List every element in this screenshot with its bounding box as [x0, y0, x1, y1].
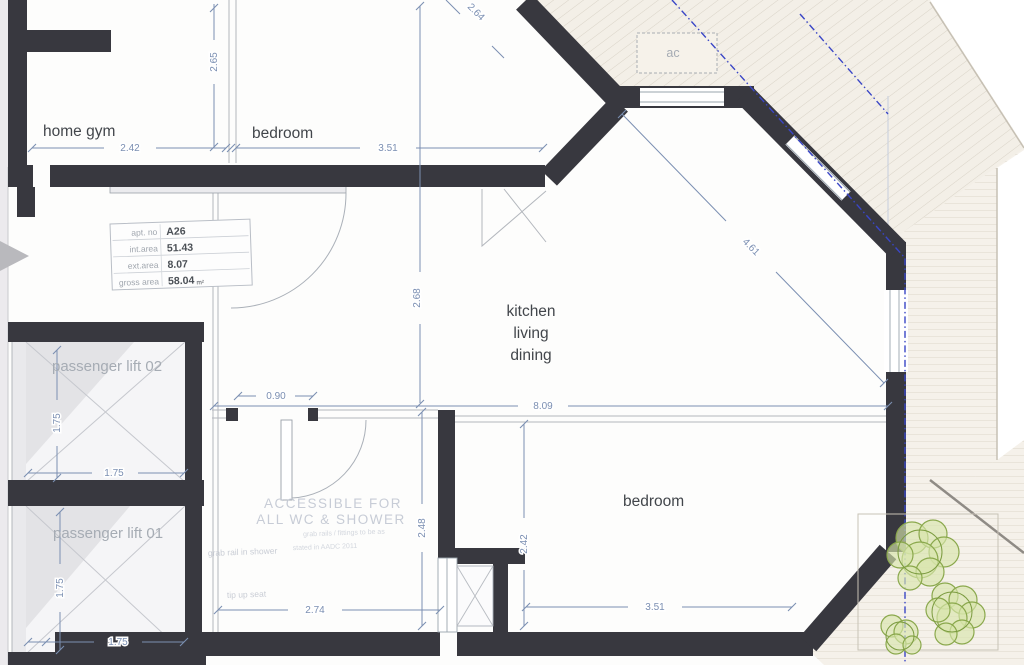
- dim-lift01-height: 1.75: [55, 578, 66, 598]
- dim-gym-width: 2.42: [120, 143, 140, 154]
- table-value-ext-area: 8.07: [167, 258, 188, 271]
- dim-partition-height: 2.65: [209, 52, 220, 72]
- room-label-bedroom-bottom: bedroom: [623, 493, 684, 510]
- room-label-lift-02: passenger lift 02: [52, 358, 162, 375]
- dim-bathroom-width: 2.74: [305, 605, 325, 616]
- room-label-living: living: [513, 325, 548, 342]
- dim-kitchen-width: 8.09: [533, 401, 553, 412]
- dim-bedroom-bottom-height: 2.42: [519, 534, 530, 554]
- dim-lift02-width: 1.75: [104, 468, 124, 479]
- table-label-apt-no: apt. no: [131, 227, 158, 238]
- accessible-note-line1: ACCESSIBLE FOR: [264, 496, 402, 511]
- dim-lift02-height: 1.75: [52, 413, 63, 433]
- table-label-int-area: int.area: [129, 243, 158, 254]
- room-label-dining: dining: [510, 347, 551, 364]
- room-label-ac: ac: [666, 46, 679, 60]
- door-leaf: [281, 420, 292, 500]
- floor-plan-drawing: 2.42 3.51 2.65 2.68 8.09 4.61 0.90 1.75 …: [0, 0, 1024, 665]
- dim-door-width: 0.90: [266, 391, 286, 402]
- table-value-int-area: 51.43: [167, 242, 194, 255]
- room-label-lift-01: passenger lift 01: [53, 525, 163, 542]
- table-value-apt-no: A26: [166, 225, 186, 238]
- window: [640, 88, 724, 106]
- info-table: apt. no A26 int.area 51.43 ext.area 8.07…: [110, 219, 252, 290]
- floor-plan: 2.42 3.51 2.65 2.68 8.09 4.61 0.90 1.75 …: [0, 0, 1024, 665]
- dim-kitchen-height: 2.68: [412, 288, 423, 308]
- dim-bedroom-bottom-width: 3.51: [645, 602, 665, 613]
- accessible-note-line2: ALL WC & SHOWER: [256, 512, 406, 527]
- table-label-gross-area: gross area: [119, 276, 160, 287]
- room-label-kitchen: kitchen: [506, 303, 555, 320]
- room-label-home-gym: home gym: [43, 123, 115, 140]
- dim-lift01-width: 1.75: [108, 637, 128, 648]
- dim-bedroom-top-width: 3.51: [378, 143, 398, 154]
- room-label-bedroom-top: bedroom: [252, 125, 313, 142]
- window: [438, 558, 457, 632]
- seat-note: tip up seat: [227, 589, 267, 600]
- dim-bathroom-height: 2.48: [417, 518, 428, 538]
- table-label-ext-area: ext.area: [128, 260, 159, 271]
